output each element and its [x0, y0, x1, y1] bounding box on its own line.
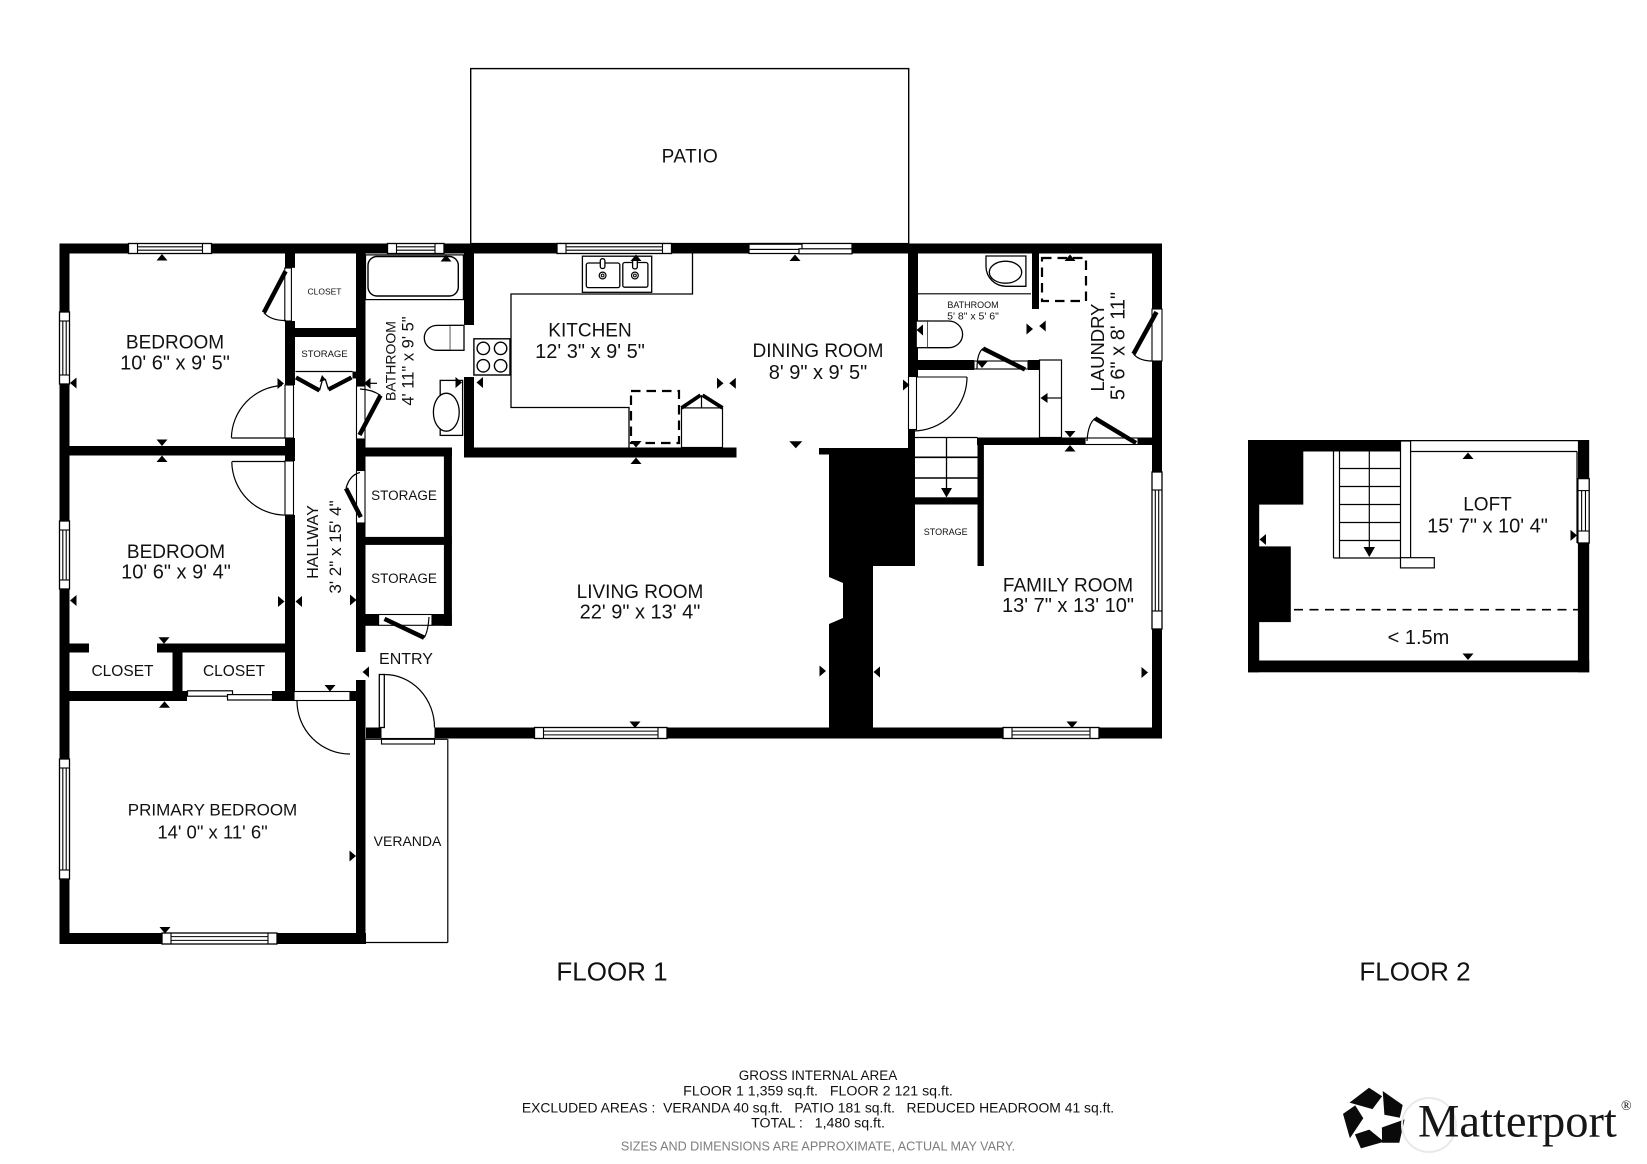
svg-text:10' 6" x 9' 4": 10' 6" x 9' 4" [121, 562, 231, 584]
svg-text:CLOSET: CLOSET [307, 287, 341, 297]
svg-text:PRIMARY BEDROOM: PRIMARY BEDROOM [128, 801, 297, 820]
svg-text:®: ® [1621, 1099, 1632, 1114]
svg-text:14' 0" x 11' 6": 14' 0" x 11' 6" [157, 822, 267, 843]
svg-text:BATHROOM: BATHROOM [947, 300, 998, 310]
svg-text:STORAGE: STORAGE [371, 571, 437, 586]
svg-text:SIZES AND DIMENSIONS ARE APPRO: SIZES AND DIMENSIONS ARE APPROXIMATE, AC… [621, 1140, 1015, 1154]
svg-text:10' 6" x 9' 5": 10' 6" x 9' 5" [120, 353, 230, 375]
svg-text:FLOOR 2: FLOOR 2 [1359, 957, 1470, 987]
svg-text:HALLWAY: HALLWAY [305, 505, 322, 579]
svg-text:LIVING ROOM: LIVING ROOM [577, 582, 704, 603]
svg-text:STORAGE: STORAGE [924, 527, 968, 537]
svg-text:FLOOR 1 1,359 sq.ft. FLOOR 2: FLOOR 1 1,359 sq.ft. FLOOR 2 121 sq.ft. [683, 1084, 953, 1100]
svg-text:FAMILY ROOM: FAMILY ROOM [1003, 576, 1133, 597]
svg-text:FLOOR 1: FLOOR 1 [556, 957, 667, 987]
svg-text:12' 3" x 9' 5": 12' 3" x 9' 5" [535, 341, 645, 363]
svg-text:VERANDA: VERANDA [374, 833, 442, 849]
svg-text:15' 7" x 10' 4": 15' 7" x 10' 4" [1427, 516, 1548, 538]
svg-text:GROSS INTERNAL AREA: GROSS INTERNAL AREA [739, 1068, 898, 1083]
svg-text:BEDROOM: BEDROOM [126, 333, 224, 354]
svg-text:PATIO: PATIO [662, 147, 719, 168]
svg-text:CLOSET: CLOSET [91, 663, 154, 680]
svg-text:STORAGE: STORAGE [371, 488, 437, 503]
svg-text:LOFT: LOFT [1463, 495, 1512, 516]
svg-text:CLOSET: CLOSET [203, 663, 266, 680]
svg-text:STORAGE: STORAGE [301, 349, 347, 360]
svg-text:< 1.5m: < 1.5m [1388, 627, 1450, 649]
svg-text:LAUNDRY: LAUNDRY [1087, 303, 1108, 391]
svg-text:Matterport: Matterport [1418, 1097, 1617, 1148]
svg-text:5' 6" x 8' 11": 5' 6" x 8' 11" [1108, 292, 1130, 400]
svg-text:13' 7" x 13' 10": 13' 7" x 13' 10" [1002, 595, 1134, 617]
svg-text:8' 9" x 9' 5": 8' 9" x 9' 5" [769, 362, 868, 384]
svg-text:EXCLUDED AREAS : VERANDA 40 s: EXCLUDED AREAS : VERANDA 40 sq.ft. PATIO… [522, 1100, 1114, 1116]
svg-text:4' 11" x 9' 5": 4' 11" x 9' 5" [400, 316, 418, 405]
svg-text:BATHROOM: BATHROOM [383, 321, 399, 401]
svg-text:KITCHEN: KITCHEN [548, 321, 631, 342]
svg-text:DINING ROOM: DINING ROOM [753, 341, 884, 362]
svg-text:22' 9" x 13' 4": 22' 9" x 13' 4" [580, 602, 701, 624]
svg-text:3' 2" x 15' 4": 3' 2" x 15' 4" [326, 500, 345, 593]
svg-text:ENTRY: ENTRY [379, 651, 433, 668]
svg-text:BEDROOM: BEDROOM [127, 542, 225, 563]
svg-text:5' 8" x 5' 6": 5' 8" x 5' 6" [947, 311, 999, 323]
svg-text:TOTAL : 1,480 sq.ft.: TOTAL : 1,480 sq.ft. [751, 1116, 885, 1132]
